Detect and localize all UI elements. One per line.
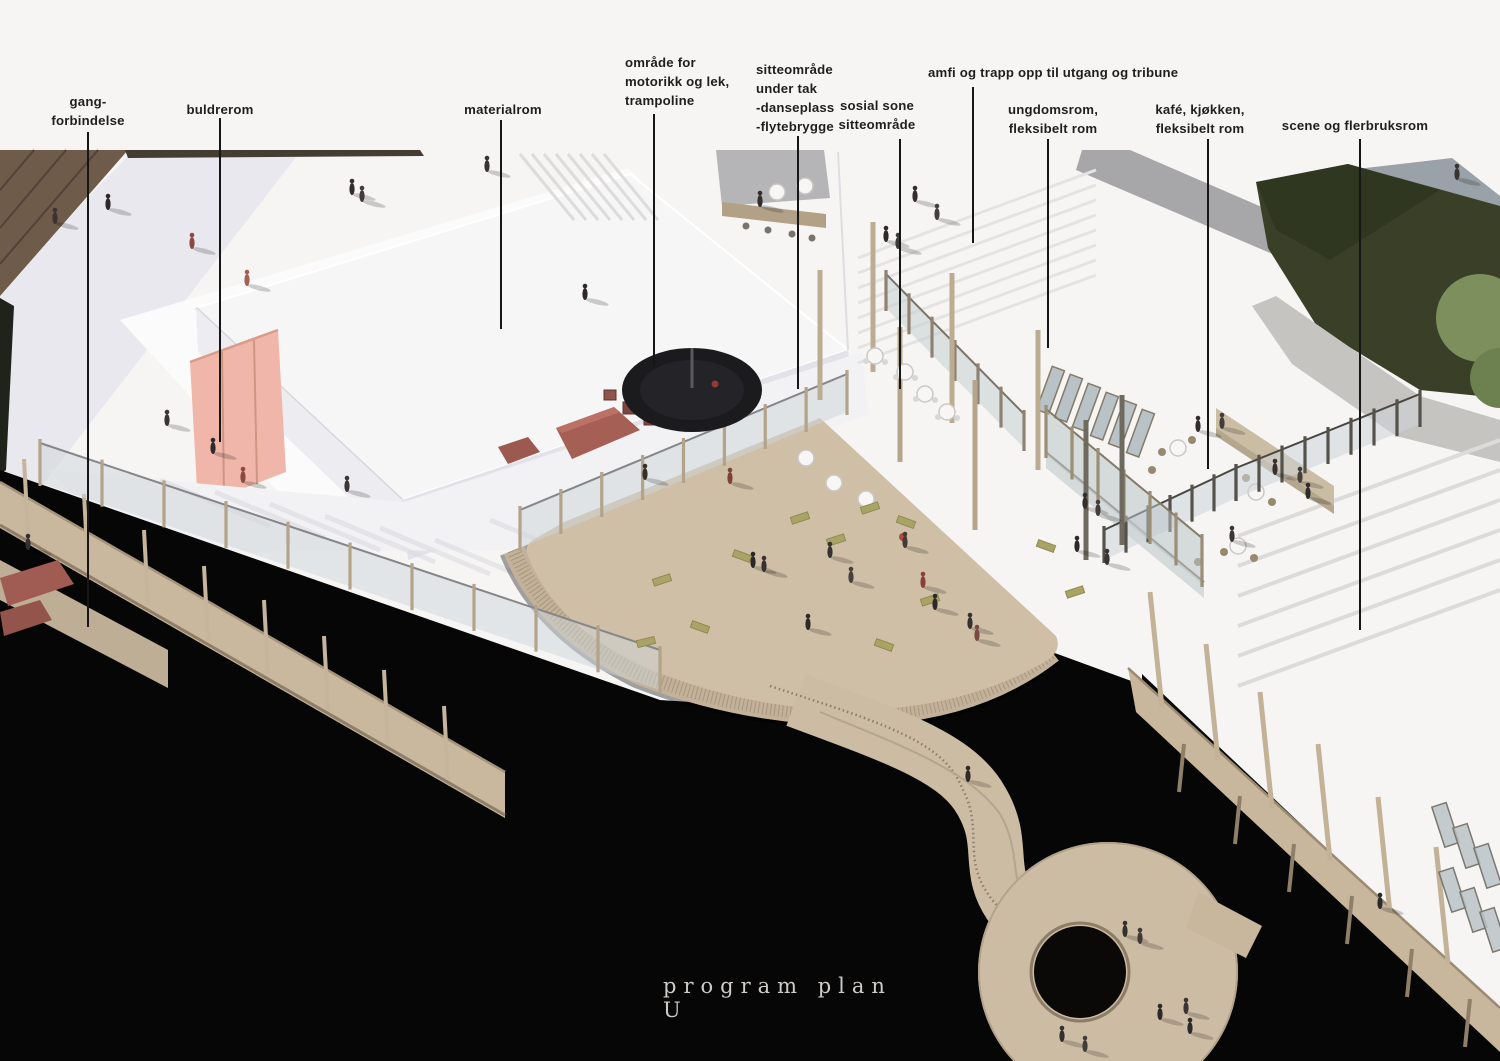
callout-scene: scene og flerbruksrom: [1272, 116, 1438, 135]
render-scene: [0, 0, 1500, 1061]
callout-sosial-sone: sosial sone sitteområde: [817, 96, 937, 134]
leader-line-materialrom: [500, 120, 502, 329]
callout-materialrom: materialrom: [440, 100, 566, 119]
leader-line-omrade-motorikk: [653, 114, 655, 366]
leader-line-ungdomsrom: [1047, 139, 1049, 348]
callout-ungdomsrom: ungdomsrom, fleksibelt rom: [993, 100, 1113, 138]
deck-hole: [1034, 926, 1126, 1018]
callout-buldrerom: buldrerom: [160, 100, 280, 119]
leader-line-buldrerom: [219, 118, 221, 442]
leader-line-gang-forbindelse: [87, 132, 89, 627]
leader-line-scene: [1359, 139, 1361, 630]
program-plan-diagram: gang- forbindelse buldrerom materialrom …: [0, 0, 1500, 1061]
leader-line-amfi: [972, 87, 974, 243]
plan-title: program plan U: [663, 974, 923, 1022]
callout-omrade-motorikk: område for motorikk og lek, trampoline: [625, 53, 755, 110]
callout-gang-forbindelse: gang- forbindelse: [28, 92, 148, 130]
trampoline: [622, 348, 762, 432]
callout-amfi: amfi og trapp opp til utgang og tribune: [928, 63, 1188, 82]
leader-line-kafe: [1207, 139, 1209, 469]
leader-line-sosial-sone: [899, 139, 901, 389]
callout-kafe: kafé, kjøkken, fleksibelt rom: [1139, 100, 1261, 138]
leader-line-sitteomrade: [797, 136, 799, 389]
